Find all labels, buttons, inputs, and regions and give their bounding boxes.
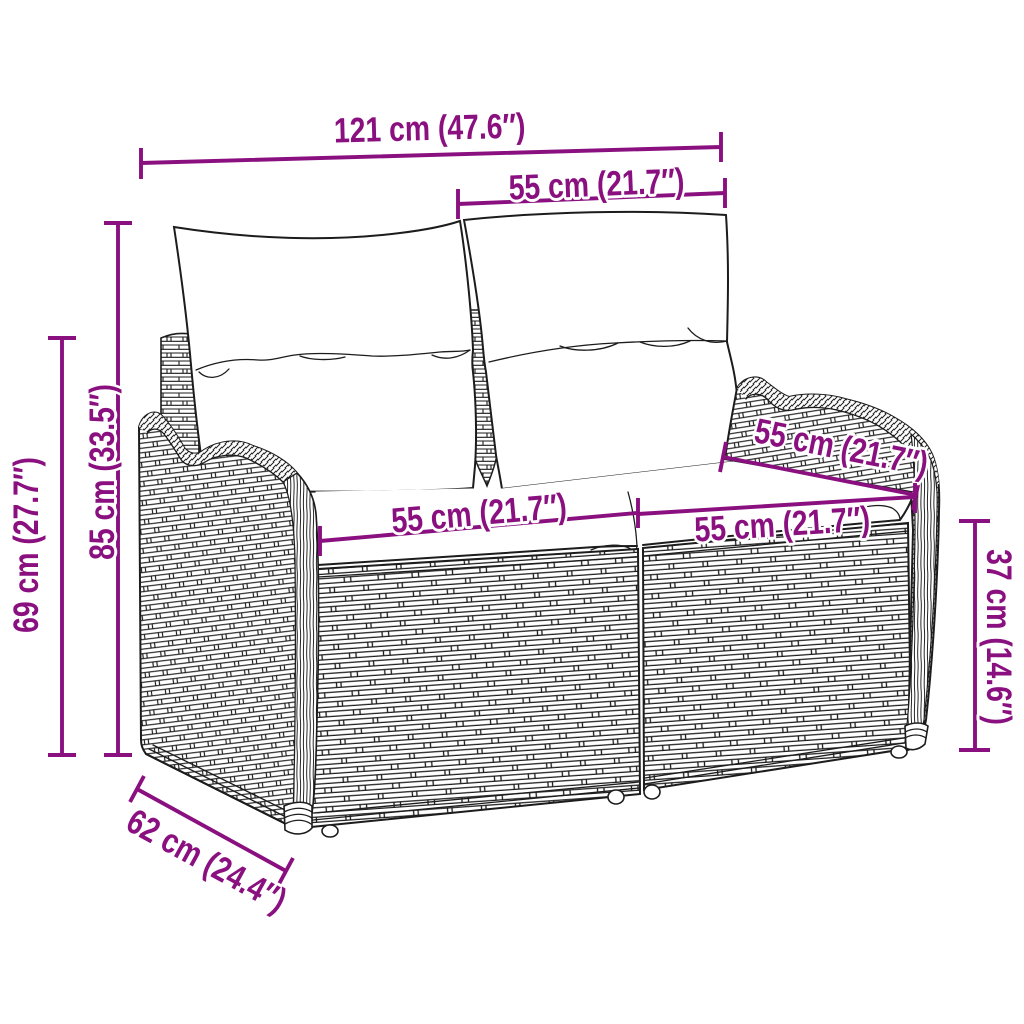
svg-text:37 cm (14.6″): 37 cm (14.6″) (979, 549, 1019, 725)
svg-text:85 cm (33.5″): 85 cm (33.5″) (82, 384, 122, 560)
svg-text:55 cm (21.7″): 55 cm (21.7″) (508, 160, 685, 207)
svg-text:121 cm (47.6″): 121 cm (47.6″) (333, 106, 526, 151)
svg-text:69 cm (27.7″): 69 cm (27.7″) (6, 457, 46, 633)
